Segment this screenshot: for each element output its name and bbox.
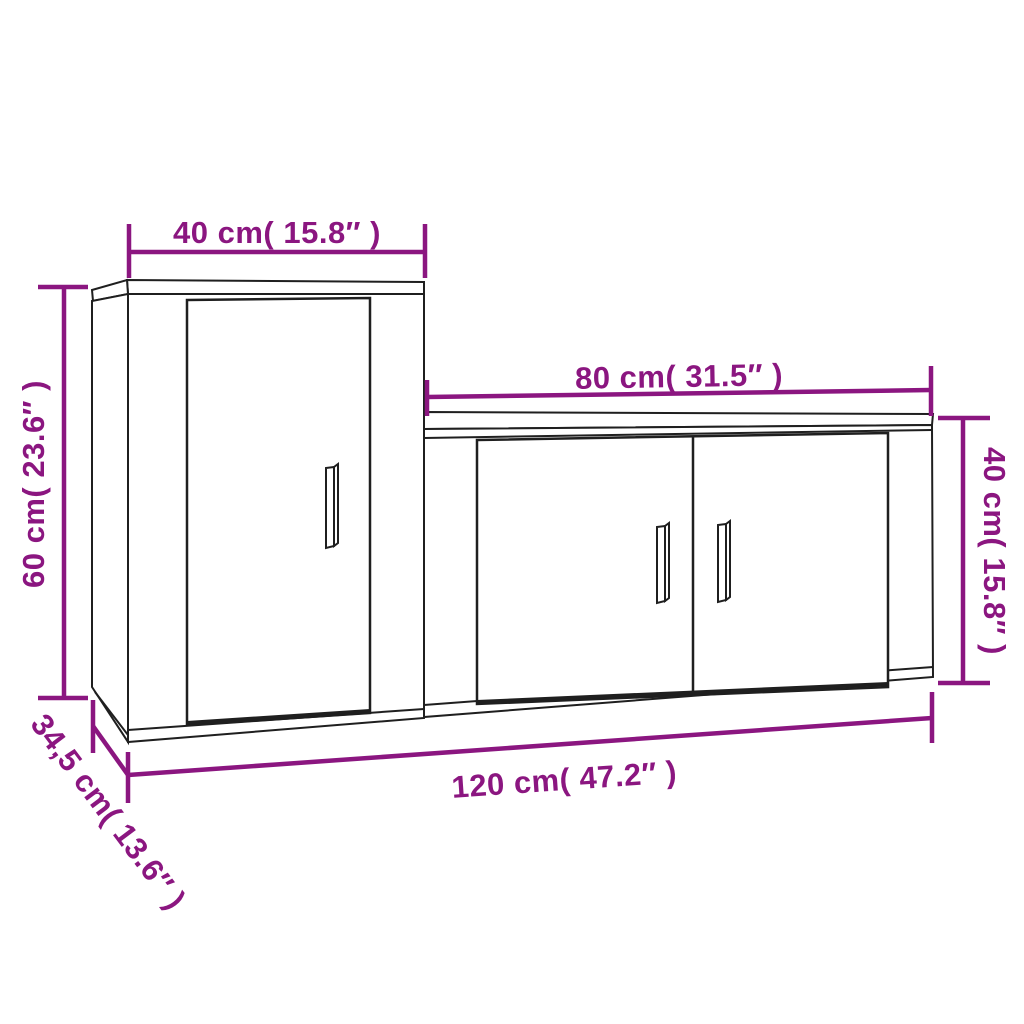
tall-cabinet	[92, 280, 424, 742]
label-low-cabinet-height: 40 cm( 15.8″ )	[977, 447, 1012, 655]
tall-cabinet-top-slab-front	[127, 280, 424, 294]
label-total-width: 120 cm( 47.2″ )	[450, 754, 678, 805]
low-cabinet	[424, 412, 933, 717]
label-tall-cabinet-height: 60 cm( 23.6″ )	[16, 380, 51, 588]
label-tall-cabinet-width: 40 cm( 15.8″ )	[173, 215, 381, 250]
low-cabinet-left-door-handle	[657, 523, 669, 603]
product-diagram-canvas: 40 cm( 15.8″ ) 80 cm( 31.5″ ) 60 cm( 23.…	[0, 0, 1024, 1024]
low-cabinet-right-door-handle	[718, 521, 730, 602]
low-cabinet-doors	[477, 433, 888, 704]
tall-cabinet-door-handle	[326, 464, 338, 548]
furniture-dimension-diagram: 40 cm( 15.8″ ) 80 cm( 31.5″ ) 60 cm( 23.…	[0, 0, 1024, 1024]
label-low-cabinet-width: 80 cm( 31.5″ )	[575, 357, 784, 396]
tall-cabinet-side-panel	[92, 294, 128, 742]
cabinet-outlines	[92, 280, 933, 742]
tall-cabinet-door	[187, 298, 370, 725]
